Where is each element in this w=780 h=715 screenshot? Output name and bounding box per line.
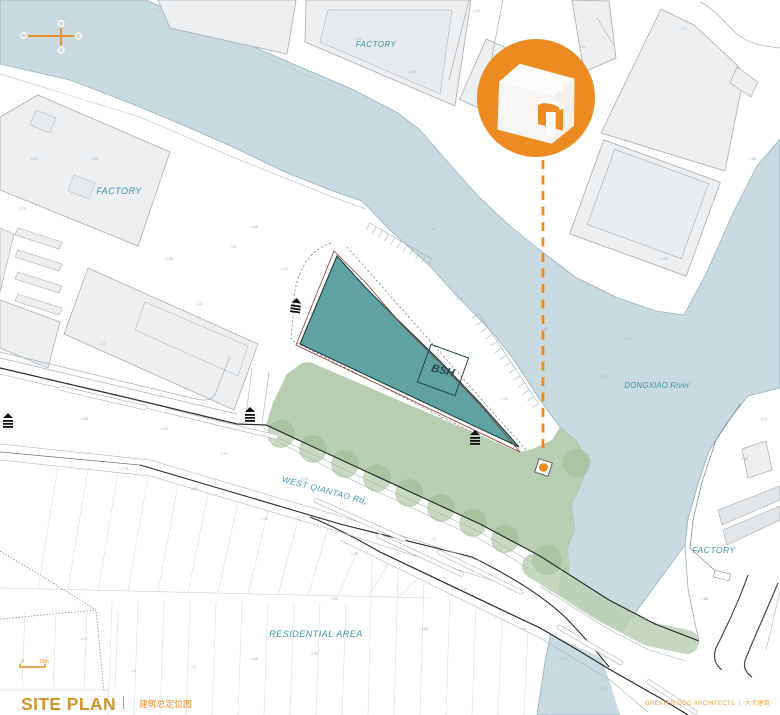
svg-text:-1.95: -1.95	[740, 457, 748, 461]
svg-text:-1.8: -1.8	[430, 537, 436, 541]
svg-text:-2.07: -2.07	[624, 337, 632, 341]
svg-text:-2.07: -2.07	[80, 637, 88, 641]
svg-text:-1.8: -1.8	[680, 27, 686, 31]
svg-text:E: E	[77, 34, 80, 39]
svg-text:-1.95: -1.95	[260, 517, 268, 521]
svg-text:SITE PLAN: SITE PLAN	[21, 694, 116, 714]
svg-text:-1.4: -1.4	[430, 227, 436, 231]
svg-text:-1.75: -1.75	[600, 687, 608, 691]
svg-text:-1.88: -1.88	[165, 257, 173, 261]
svg-text:-1.88: -1.88	[700, 597, 708, 601]
svg-text:-2.07: -2.07	[190, 487, 198, 491]
svg-text:-2.07: -2.07	[760, 417, 768, 421]
svg-text:-1.4: -1.4	[130, 669, 136, 673]
svg-text:FACTORY: FACTORY	[692, 545, 736, 555]
svg-text:FACTORY: FACTORY	[96, 186, 142, 196]
svg-text:-1.4: -1.4	[460, 587, 466, 591]
svg-text:-1.8: -1.8	[40, 377, 46, 381]
svg-text:-1.75: -1.75	[300, 477, 308, 481]
svg-text:RESIDENTIAL AREA: RESIDENTIAL AREA	[269, 629, 363, 639]
svg-text:-1.75: -1.75	[120, 467, 128, 471]
svg-text:-1.4: -1.4	[560, 567, 566, 571]
svg-text:0: 0	[21, 659, 24, 665]
svg-text:-1.95: -1.95	[330, 597, 338, 601]
svg-text:FACTORY: FACTORY	[356, 40, 397, 49]
svg-text:DONGXIAO River: DONGXIAO River	[624, 381, 689, 390]
svg-text:N: N	[59, 21, 62, 26]
svg-text:-1.4: -1.4	[100, 342, 106, 346]
svg-text:-2.07: -2.07	[30, 157, 38, 161]
svg-text:-1.4: -1.4	[360, 502, 366, 506]
svg-text:-1.8: -1.8	[640, 617, 646, 621]
svg-text:建筑总定位图: 建筑总定位图	[139, 698, 192, 709]
svg-text:-1.88: -1.88	[748, 157, 756, 161]
svg-text:-1.8: -1.8	[230, 245, 236, 249]
svg-text:-1.88: -1.88	[250, 225, 258, 229]
svg-text:-2.07: -2.07	[355, 37, 363, 41]
svg-text:-1.88: -1.88	[250, 657, 258, 661]
svg-text:-1.95: -1.95	[500, 397, 508, 401]
svg-text:-1.88: -1.88	[420, 627, 428, 631]
svg-text:-1.88: -1.88	[80, 417, 88, 421]
svg-text:-1.88: -1.88	[540, 327, 548, 331]
svg-text:10m: 10m	[39, 659, 49, 665]
svg-text:-1.8: -1.8	[520, 627, 526, 631]
svg-text:-1.95: -1.95	[90, 157, 98, 161]
svg-text:-1.95: -1.95	[408, 70, 416, 74]
svg-text:-2.07: -2.07	[220, 452, 228, 456]
svg-text:-1.8: -1.8	[306, 312, 312, 316]
svg-text:-1.95: -1.95	[660, 257, 668, 261]
svg-text:-1.75: -1.75	[18, 207, 26, 211]
svg-text:-1.75: -1.75	[600, 375, 608, 379]
svg-text:-1.8: -1.8	[190, 665, 196, 669]
svg-text:S: S	[59, 48, 62, 53]
svg-text:-1.75: -1.75	[472, 9, 480, 13]
svg-text:GREATER DOG ARCHITECTS | 大犬建: GREATER DOG ARCHITECTS | 大犬建筑	[645, 699, 770, 707]
svg-text:-2.07: -2.07	[560, 657, 568, 661]
svg-text:-1.4: -1.4	[580, 45, 586, 49]
svg-text:-1.95: -1.95	[160, 427, 168, 431]
svg-text:-1.95: -1.95	[310, 652, 318, 656]
svg-text:-1.75: -1.75	[455, 297, 463, 301]
svg-text:-1.4: -1.4	[196, 302, 202, 306]
svg-text:-1.75: -1.75	[280, 267, 288, 271]
svg-text:-1.88: -1.88	[350, 552, 358, 556]
